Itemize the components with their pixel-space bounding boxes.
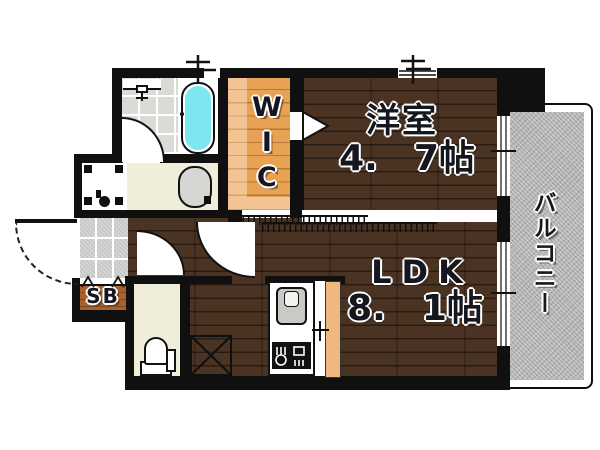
wall-segment [437,68,500,78]
entrance-tile [80,218,128,278]
wall-segment [74,210,242,218]
kitchen-sink-basin [284,291,299,307]
washer-bracket [84,197,92,205]
wic-label: WIC [252,92,280,192]
sliding-door-track [262,222,437,232]
washer-faucet-stem [96,190,101,198]
wall-segment [218,68,228,218]
wall-segment [180,284,190,379]
gas-stove [272,342,311,369]
vent-gap [204,68,220,78]
toilet-bowl [144,337,168,365]
bathtub-water [185,86,211,150]
wall-segment [112,68,122,163]
ldk-label: LDK [352,256,492,290]
wall-segment [112,68,398,78]
wall-segment [497,196,510,242]
bathtub-drain [180,112,184,116]
wall-segment [290,140,304,218]
washbasin-tap [204,196,211,204]
ldk-size: 8. 1帖 [330,290,500,328]
balcony-label: バルコニー [530,158,554,348]
wall-segment [497,78,510,116]
wall-segment [74,154,82,216]
wic-entry-triangle [300,108,332,144]
washer-bracket [115,197,123,205]
wic-threshold [228,197,290,210]
wall-segment [160,154,218,163]
wall-segment [290,68,304,112]
washer-bracket [84,165,92,173]
wall-segment [497,346,510,378]
kitchen-pass [315,281,325,376]
window-top [398,68,437,78]
western-room-size: 4. 7帖 [322,140,492,178]
wic-floor-edge [228,77,247,197]
balcony-window-west [497,116,510,196]
refrigerator-space [190,335,232,376]
washer-bracket [115,165,123,173]
entrance-door-arc [15,223,77,285]
floor-plan: SB 洋室 4. 7帖 LDK 8. 1帖 WIC バルコニー [0,0,600,450]
bathroom-vanity-mirror [136,85,148,93]
toilet-cistern [166,349,176,372]
wall-segment [125,276,232,284]
shoe-box-label: SB [78,286,128,307]
western-room-label: 洋室 [342,104,462,140]
wall-segment [125,376,510,390]
